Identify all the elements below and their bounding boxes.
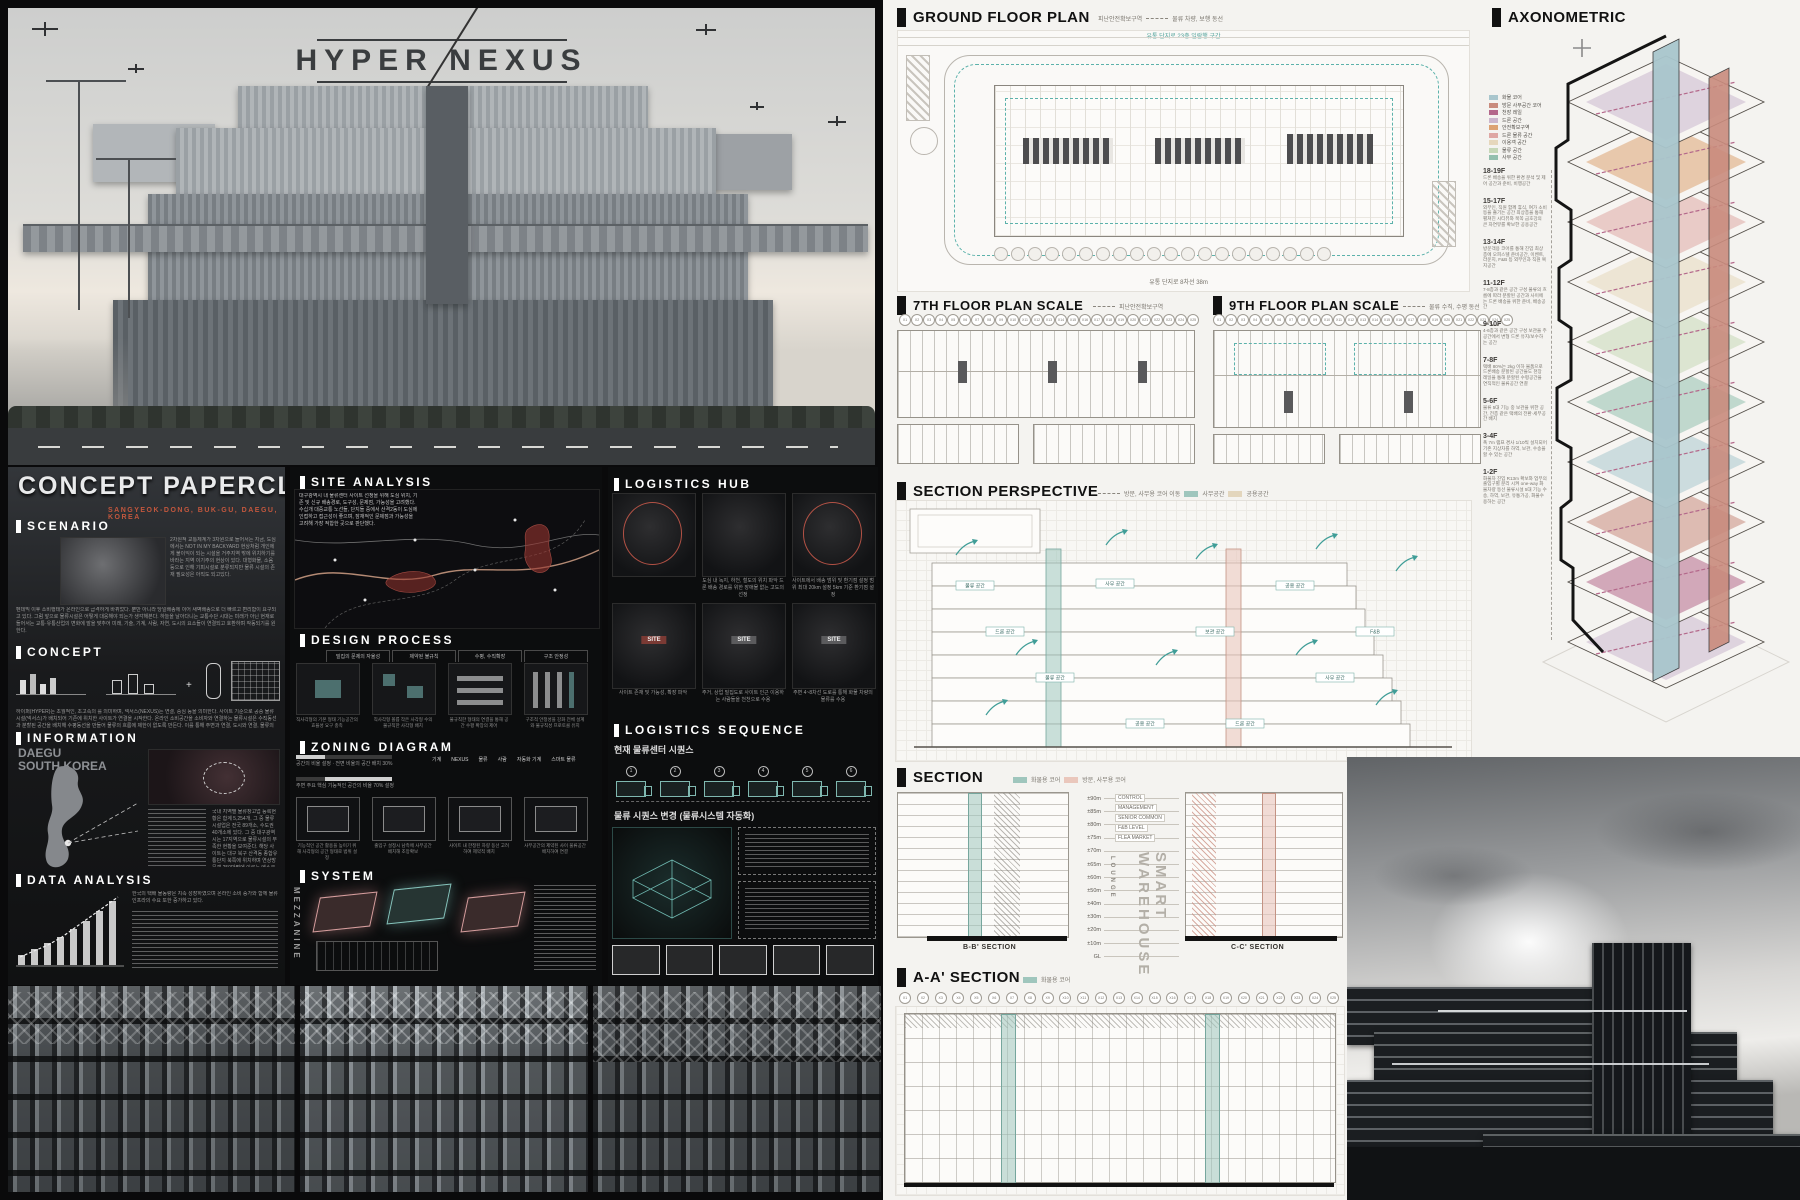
mezzanine-label: MEZZANINE: [292, 887, 301, 977]
system-iso-office: [460, 891, 525, 932]
section-perspective-title: SECTION PERSPECTIVE: [913, 483, 1098, 500]
process-thumb-2: [372, 663, 436, 715]
legend-text: 물류 차량, 보행 동선: [1172, 14, 1223, 23]
grid-bubble: X15: [1067, 314, 1079, 326]
plan7-block: [1033, 424, 1195, 464]
plus-icon: +: [186, 680, 192, 691]
legend-swatch: [1489, 155, 1498, 160]
legend-text: 피난안전확보구역: [1119, 302, 1163, 311]
tree-icon: [1164, 247, 1178, 261]
aa-grid-bubbles: X1X2X3X4X5X6X7X8X9X10X11X12X13X14X15X16X…: [899, 992, 1339, 1004]
section-bb-base: [927, 936, 1067, 941]
tree-icon: [994, 247, 1008, 261]
dash-icon: [1146, 18, 1168, 19]
level-label: ±80m: [1079, 822, 1101, 828]
section-bb-label: B-B' SECTION: [963, 944, 1016, 951]
data-analysis-label: DATA ANALYSIS: [27, 873, 153, 887]
legend-text: 물류 수직, 수평 동선: [1429, 302, 1480, 311]
ground-plan-legend: 피난안전확보구역 물류 차량, 보행 동선: [1098, 14, 1223, 23]
analysis-column: SITE ANALYSIS 대구광역시 내 물류센터 사이트 선정을 위해 도심…: [290, 467, 602, 985]
legend-label: 물류 공간: [1502, 147, 1522, 154]
truck-icon: [660, 781, 690, 797]
plan9-block: [1339, 434, 1481, 464]
header-bar: [897, 768, 906, 787]
legend-swatch: [1489, 125, 1498, 130]
grid-bubble: X4: [1249, 314, 1261, 326]
flow-box-1: [738, 827, 876, 875]
grid-bubble: X19: [1115, 314, 1127, 326]
facade-photo-3: [593, 986, 881, 1192]
concept-diagram: +: [16, 661, 278, 705]
facade-photo-1: [8, 986, 295, 1192]
plan9-block: [1213, 434, 1325, 464]
truck-icon: [704, 781, 734, 797]
logistics-hub-header: LOGISTICS HUB: [614, 477, 752, 491]
system-iso-logistics: [386, 883, 451, 924]
grid-bubble: X18: [1417, 314, 1429, 326]
grid-bubble: X19: [1429, 314, 1441, 326]
grid-bubble: X8: [1024, 992, 1036, 1004]
step-number: 6: [846, 766, 857, 777]
caption: 사이트 내 한정된 차량 동선 고려하여 제약적 배치: [448, 843, 510, 861]
scenario-label: SCENARIO: [27, 519, 110, 533]
ground-floor-plan-header: GROUND FLOOR PLAN: [897, 8, 1090, 27]
section-bb-drawing: [897, 792, 1069, 938]
left-board: HYPER NEXUS 물류의 혁신 - 근미래 드론을 활용한 물류시설의 프…: [0, 0, 883, 1200]
grid-bubble: X16: [1079, 314, 1091, 326]
tree-icon: [1079, 247, 1093, 261]
grid-bubble: X22: [1151, 314, 1163, 326]
header-bar: [300, 741, 305, 754]
sequence-step: 6: [832, 759, 870, 797]
presentation-board: HYPER NEXUS 물류의 혁신 - 근미래 드론을 활용한 물류시설의 프…: [0, 0, 1800, 1200]
plan9-legend: 물류 수직, 수평 동선: [1403, 302, 1480, 311]
hatch-patch: [1432, 181, 1456, 247]
truck-icon: [616, 781, 646, 797]
header-bar: [614, 724, 619, 737]
sequence-subtitle-2: 물류 시퀀스 변경 (물류시스템 자동화): [614, 809, 754, 822]
space-label: 사무 공간: [1325, 675, 1345, 682]
helicopter-icon: [828, 116, 846, 126]
concept-header: CONCEPT: [16, 645, 103, 659]
grid-bubble: X3: [1237, 314, 1249, 326]
legend-label: 천장 레일: [1502, 109, 1522, 116]
legend-text: 화물용 코어: [1031, 775, 1060, 784]
section-perspective-drawing: 물류 공간사무 공간공용 공간드론 공간보관 공간F&B물류 공간사무 공간공용…: [895, 500, 1472, 762]
legend-label: 드론 물류 공간: [1502, 132, 1532, 139]
list-item: 스마트 물류: [551, 757, 575, 764]
plan9-drawing: [1213, 330, 1481, 428]
section-cc-base: [1185, 936, 1337, 941]
space-label: 사무 공간: [1105, 581, 1125, 588]
section-cc-label: C-C' SECTION: [1231, 944, 1284, 951]
lounge-label: LOUNGE: [1109, 856, 1115, 906]
site-analysis-body: 대구광역시 내 물류센터 사이트 선정을 위해 도심 위치, 기존 및 신규 배…: [299, 493, 419, 539]
hub-map-3: [792, 493, 876, 577]
plan9-title: 9TH FLOOR PLAN SCALE: [1229, 298, 1399, 313]
scenario-header: SCENARIO: [16, 519, 110, 533]
grid-bubble: X10: [1007, 314, 1019, 326]
design-process-label: DESIGN PROCESS: [311, 633, 454, 647]
tree-icon: [1232, 247, 1246, 261]
drone-icon: [750, 102, 764, 110]
caption: 구조적 안정성을 강화 전체 설계와 불규칙성 프로토콜 유지: [524, 717, 586, 729]
sequence-subtitle: 현재 물류센터 시퀀스: [614, 743, 694, 756]
tree-circle-row: [994, 247, 1334, 261]
level-label: ±20m: [1079, 927, 1101, 933]
cargo-core: [1205, 1014, 1220, 1184]
hub-map-1: [612, 493, 696, 577]
axonomet­ric-drawing: [1533, 22, 1798, 732]
facade-photo-2: [300, 986, 588, 1192]
info-bar-chart: [148, 809, 206, 867]
aa-section-header: A-A' SECTION: [897, 968, 1020, 987]
logistics-hub-label: LOGISTICS HUB: [625, 477, 752, 491]
section-header: SECTION: [897, 768, 983, 787]
system-iso-storage: [312, 891, 377, 932]
grid-bubble: X1: [899, 992, 911, 1004]
space-label: 공용 공간: [1135, 721, 1155, 728]
tree-icon: [1317, 247, 1331, 261]
crane-icon: [78, 80, 80, 310]
logistics-column: LOGISTICS HUB 도심 내 녹지, 하천, 철도의 위치 파악 드론 …: [608, 467, 878, 985]
legend-label: 안전확보구역: [1502, 124, 1530, 131]
grid-bubble: X7: [1285, 314, 1297, 326]
hatch-patch: [906, 55, 930, 121]
legend-label: 드론 공간: [1502, 117, 1522, 124]
caption: 직사각형 볼륨 작은 사각형 수의 불규칙한 사각형 배치: [372, 717, 434, 729]
legend-swatch: [1489, 118, 1498, 123]
tree-icon: [1130, 247, 1144, 261]
caption: 사무공간의 제약된 사이 물류공간 배치하여 연결: [524, 843, 586, 861]
space-label: F&B: [1370, 630, 1380, 636]
tree-icon: [1028, 247, 1042, 261]
tree-icon: [1249, 247, 1263, 261]
level-annotation: FLEA MARKET: [1115, 834, 1155, 842]
grid-bubble: X11: [1019, 314, 1031, 326]
grid-bubble: X19: [1220, 992, 1232, 1004]
tree-icon: [1283, 247, 1297, 261]
grid-bubble: X5: [1261, 314, 1273, 326]
caption: 출입구 설정시 남측에 사무공간 배치해 조망확보: [372, 843, 434, 861]
cloud: [1374, 846, 1534, 906]
zoning-icon-labels: 기계NEXUS물류사람자동화 기계스마트 물류: [432, 757, 598, 764]
concept-body: 하이퍼(HYPER)는 초월적인, 초고속의 를 의미하며, 넥서스(NEXUS…: [16, 709, 278, 729]
zoning-caption-row: 기능적인 공간 활용을 높이기 위해 사각형의 공간 형태로 범위 설정출입구 …: [296, 843, 596, 861]
grid-bubble: X3: [923, 314, 935, 326]
title-rule-top: [317, 39, 567, 41]
zoning-box-3: [448, 797, 512, 841]
grid-bubble: X18: [1103, 314, 1115, 326]
plan7-title: 7TH FLOOR PLAN SCALE: [913, 298, 1083, 313]
grid-bubble: X1: [1213, 314, 1225, 326]
header-bar: [897, 8, 906, 27]
grid-bubble: X24: [1309, 992, 1321, 1004]
legend-swatch: [1489, 103, 1498, 108]
automation-iso-diagram: [612, 827, 732, 939]
zoning-diagram-header: ZONING DIAGRAM: [300, 740, 453, 754]
title-rule-bottom: [317, 81, 567, 83]
cargo-core: [1001, 1014, 1016, 1184]
process-tab: 밀집의 문제의 자율성: [326, 650, 390, 662]
interior-loop: [1005, 98, 1393, 224]
legend-text: 화물용 코어: [1041, 975, 1070, 984]
information-label: INFORMATION: [27, 731, 138, 745]
grid-bubble: X16: [1166, 992, 1178, 1004]
grid-bubble: X13: [1113, 992, 1125, 1004]
plan9-header: 9TH FLOOR PLAN SCALE: [1213, 296, 1399, 315]
grid-bubble: X7: [971, 314, 983, 326]
header-bar: [16, 874, 21, 887]
legend-swatch: [1489, 110, 1498, 115]
sequence-step-row: 123456: [612, 759, 870, 797]
site-chip: SITE: [821, 636, 846, 644]
growth-line-chart: [14, 891, 126, 971]
legend-swatch: [1064, 777, 1078, 783]
header-bar: [16, 646, 21, 659]
tree-icon: [1062, 247, 1076, 261]
process-tab: 구조 안정성: [524, 650, 588, 662]
process-thumb-4: [524, 663, 588, 715]
grid-bubble: X5: [970, 992, 982, 1004]
grid-bubble: X24: [1175, 314, 1187, 326]
grid-bubble: X17: [1405, 314, 1417, 326]
legend-text: 사무공간: [1202, 489, 1224, 498]
list-item: 기계: [432, 757, 441, 764]
plan7-grid-bubbles: X1X2X3X4X5X6X7X8X9X10X11X12X13X14X15X16X…: [899, 314, 1191, 326]
hub-site-1: SITE: [612, 603, 696, 689]
space-label: 공용 공간: [1285, 583, 1305, 590]
sequence-divider: [616, 801, 870, 802]
grid-bubble: X9: [995, 314, 1007, 326]
tree-icon: [1011, 247, 1025, 261]
drone-icon: [128, 64, 144, 73]
data-analysis-body: 한국의 택배 물동량은 지속 성장하였으며 온라인 소비 증가와 함께 물류 인…: [132, 891, 278, 907]
section-perspective-header: SECTION PERSPECTIVE: [897, 482, 1098, 501]
section-cc-drawing: [1185, 792, 1343, 938]
legend-label: 이용객 공간: [1502, 139, 1526, 146]
level-annotation: SENIOR COMMON: [1115, 814, 1165, 822]
tree-icon: [1266, 247, 1280, 261]
grid-bubble: X15: [1149, 992, 1161, 1004]
grid-bubble: X10: [1059, 992, 1071, 1004]
grid-bubble: X4: [935, 314, 947, 326]
zoning-box-2: [372, 797, 436, 841]
grid-bubble: X12: [1345, 314, 1357, 326]
dash-icon: [1093, 306, 1115, 307]
caption: 불규칙한 형태의 연결을 통해 공간 수평 확장의 제어: [448, 717, 510, 729]
concept-title: CONCEPT PAPERCLIP: [18, 472, 285, 501]
zoning-note-1: 공간의 비율 설정 · 전면 비율의 공간 배치 30%: [296, 761, 426, 768]
sequence-step: 3: [700, 759, 738, 797]
level-label: ±10m: [1079, 941, 1101, 947]
tree-icon: [1181, 247, 1195, 261]
grid-bubble: X3: [935, 992, 947, 1004]
step-number: 2: [670, 766, 681, 777]
header-bar: [300, 634, 305, 647]
aa-section-title: A-A' SECTION: [913, 969, 1020, 986]
level-annotations: CONTROLMANAGEMENTSENIOR COMMONF&B LEVELF…: [1115, 794, 1165, 844]
header-bar: [300, 476, 305, 489]
grid-bubble: X7: [1006, 992, 1018, 1004]
grid-bubble: X6: [959, 314, 971, 326]
crane-icon: [128, 158, 130, 318]
tree-icon: [1045, 247, 1059, 261]
section-legend: 화물용 코어 방문, 사무용 코어: [1013, 775, 1126, 784]
tree-icon: [1300, 247, 1314, 261]
grid-bubble: X13: [1043, 314, 1055, 326]
hub-caption: 도심 내 녹지, 하천, 철도의 위치 파악 드론 배송 경로를 위한 장애물 …: [702, 578, 784, 599]
dash-icon: [1403, 306, 1425, 307]
caption: 기능적인 공간 활용을 높이기 위해 사각형의 공간 형태로 범위 설정: [296, 843, 358, 861]
grid-bubble: X8: [983, 314, 995, 326]
system-header: SYSTEM: [300, 869, 375, 883]
grid-bubble: X6: [1273, 314, 1285, 326]
list-item: 자동화 기계: [517, 757, 541, 764]
flow-box-2: [738, 881, 876, 939]
aa-section-drawing: [895, 1006, 1345, 1196]
scenario-side-text: 2차원적 교통체계가 3차원으로 들어서는 지금, 도심에서는 NOT IN M…: [170, 537, 278, 603]
logistics-sequence-label: LOGISTICS SEQUENCE: [625, 723, 805, 737]
visitor-core: [1262, 793, 1276, 939]
process-tab: 제약된 불규칙: [392, 650, 456, 662]
header-bar: [1492, 8, 1501, 27]
data-analysis-table: [132, 911, 278, 971]
legend-swatch: [1013, 777, 1027, 783]
smart-warehouse-label: SMART WAREHOUSE: [1135, 852, 1169, 964]
concept-label: CONCEPT: [27, 645, 103, 659]
header-bar: [300, 870, 305, 883]
level-annotation: F&B LEVEL: [1115, 824, 1148, 832]
data-analysis-header: DATA ANALYSIS: [16, 873, 153, 887]
right-board: GROUND FLOOR PLAN 피난안전확보구역 물류 차량, 보행 동선 …: [883, 0, 1800, 1200]
grid-bubble: X6: [988, 992, 1000, 1004]
sequence-step: 1: [612, 759, 650, 797]
grid-bubble: X23: [1163, 314, 1175, 326]
grid-bubble: X17: [1184, 992, 1196, 1004]
design-process-header: DESIGN PROCESS: [300, 633, 454, 647]
grid-bubble: X2: [917, 992, 929, 1004]
ground-floor-plan: 유통 단지로 23층 일람행 구간 유통 단지로 8차선 38m: [897, 30, 1470, 292]
grid-bubble: X14: [1131, 992, 1143, 1004]
grid-bubble: X11: [1077, 992, 1089, 1004]
information-header: INFORMATION: [16, 731, 138, 745]
site-analysis-header: SITE ANALYSIS: [300, 475, 433, 489]
legend-label: 사무 공간: [1502, 154, 1522, 161]
level-label: ±90m: [1079, 796, 1101, 802]
truck-icon: [836, 781, 866, 797]
level-label: ±60m: [1079, 875, 1101, 881]
space-label: 보관 공간: [1205, 629, 1225, 636]
drone-icon: [696, 24, 716, 35]
space-label: 드론 공간: [995, 629, 1015, 636]
grid-bubble: X4: [952, 992, 964, 1004]
header-bar: [16, 520, 21, 533]
level-annotation: CONTROL: [1115, 794, 1145, 802]
scenario-image: [60, 537, 166, 605]
system-label: SYSTEM: [311, 869, 375, 883]
cloud: [1596, 792, 1800, 872]
grid-bubble: X21: [1256, 992, 1268, 1004]
level-label: ±70m: [1079, 848, 1101, 854]
grid-bubble: X18: [1202, 992, 1214, 1004]
plan7-header: 7TH FLOOR PLAN SCALE: [897, 296, 1083, 315]
grid-bubble: X12: [1031, 314, 1043, 326]
legend-label: 화물 코어: [1502, 94, 1522, 101]
process-caption-row: 직사각형의 기본 형태 기능공간의 효율성 요구 충족직사각형 볼륨 작은 사각…: [296, 717, 596, 729]
step-number: 1: [626, 766, 637, 777]
plan-bottom-note: 유통 단지로 8차선 38m: [1149, 279, 1208, 287]
system-notes: [534, 885, 596, 971]
grid-bubble: X15: [1381, 314, 1393, 326]
legend-text: 피난안전확보구역: [1098, 14, 1142, 23]
space-label: 물류 공간: [965, 583, 985, 590]
process-tab-row: 밀집의 문제의 자율성제약된 불규칙수평, 수직확장구조 안정성: [326, 650, 588, 662]
process-thumb-1: [296, 663, 360, 715]
tree-icon: [1147, 247, 1161, 261]
grid-bubble: X1: [899, 314, 911, 326]
grid-bubble: X13: [1357, 314, 1369, 326]
site-analysis-label: SITE ANALYSIS: [311, 475, 433, 489]
site-aerial-thumb: [148, 749, 280, 805]
sequence-step: 5: [788, 759, 826, 797]
building-photo: [1347, 757, 1800, 1200]
concept-location: SANGYEOK-DONG, BUK-GU, DAEGU, KOREA: [108, 507, 285, 521]
section-title: SECTION: [913, 769, 983, 786]
legend-swatch: [1489, 148, 1498, 153]
hub-site-3: SITE: [792, 603, 876, 689]
hub-caption: 사이트에서 배송 범위 및 환기점 설정 범위 최대 20km 설정 5km 기…: [792, 578, 874, 599]
roundabout: [910, 127, 938, 155]
grid-bubble: X5: [947, 314, 959, 326]
legend-text: 방문, 사무용 코어: [1082, 775, 1126, 784]
grid-bubble: X2: [911, 314, 923, 326]
grid-bubble: X22: [1273, 992, 1285, 1004]
process-thumb-3: [448, 663, 512, 715]
legend-swatch: [1184, 491, 1198, 497]
caption: 직사각형의 기본 형태 기능공간의 효율성 요구 충족: [296, 717, 358, 729]
step-number: 3: [714, 766, 725, 777]
road-markings: [38, 446, 838, 448]
level-label: ±85m: [1079, 809, 1101, 815]
sp-legend: 방문, 사무용 코어 이동 사무공간 공용공간: [1098, 489, 1269, 498]
level-label: ±75m: [1079, 835, 1101, 841]
hero-render: HYPER NEXUS 물류의 혁신 - 근미래 드론을 활용한 물류시설의 프…: [8, 8, 875, 465]
header-bar: [897, 482, 906, 501]
grid-bubble: X20: [1441, 314, 1453, 326]
level-label: ±65m: [1079, 862, 1101, 868]
legend-swatch: [1489, 95, 1498, 100]
korea-map: [14, 763, 144, 871]
sequence-step: 2: [656, 759, 694, 797]
grid-bubble: X12: [1095, 992, 1107, 1004]
plan7-block: [897, 424, 1019, 464]
grid-bubble: X21: [1453, 314, 1465, 326]
level-label: ±40m: [1079, 901, 1101, 907]
grid-bubble: X14: [1369, 314, 1381, 326]
header-bar: [614, 478, 619, 491]
legend-swatch: [1023, 977, 1037, 983]
site-chip: SITE: [731, 636, 756, 644]
level-label: ±30m: [1079, 914, 1101, 920]
plan7-legend: 피난안전확보구역: [1093, 302, 1163, 311]
process-tab: 수평, 수직확장: [458, 650, 522, 662]
tree-icon: [1198, 247, 1212, 261]
building-central-atrium: [426, 86, 468, 304]
grid-bubble: X20: [1127, 314, 1139, 326]
system-plan-strip: [316, 941, 438, 971]
information-body: 국내 지역별 물류창고업 등록현황은 합계 5,254개, 그 중 물류시설업은…: [212, 809, 278, 867]
